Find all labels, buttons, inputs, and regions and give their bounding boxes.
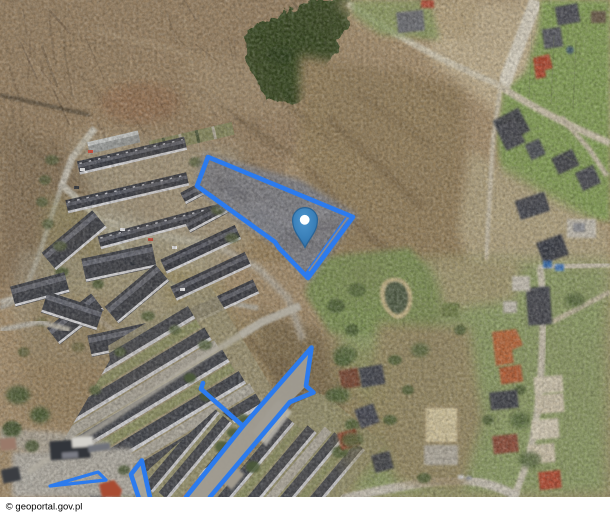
svg-text:© geoportal.gov.pl: © geoportal.gov.pl	[6, 502, 83, 513]
